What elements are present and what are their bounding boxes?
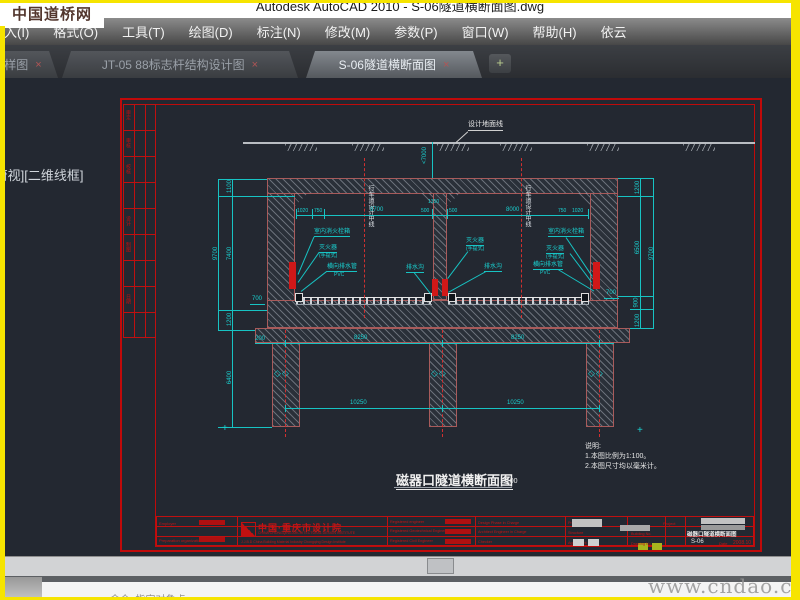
tb-label: Employer — [159, 521, 176, 526]
close-icon[interactable]: × — [252, 59, 258, 71]
centerline-text: 行车道设计中线 — [524, 185, 530, 227]
dim-label: 900 — [634, 297, 641, 307]
dim-ext — [324, 209, 325, 219]
tb-bar — [445, 529, 471, 534]
dim-line — [604, 298, 619, 299]
border-top — [0, 0, 800, 3]
tb-label: Structure — [568, 531, 583, 535]
note-line: 2.本图尺寸均以毫米计。 — [585, 462, 661, 472]
menu-item-draw[interactable]: 绘图(D) — [189, 22, 233, 41]
tb-label: Date — [719, 541, 727, 546]
break-symbol: ◇◇ — [431, 369, 447, 378]
tb-org-line: J.J.B.D China Building Material Industry… — [241, 540, 346, 544]
tb-bar — [199, 520, 225, 525]
menu-item-window[interactable]: 窗口(W) — [462, 22, 509, 41]
tb-label: Registered Civil Engineer — [390, 539, 433, 543]
tb-gray-bar — [701, 518, 745, 524]
close-icon[interactable]: × — [35, 59, 41, 71]
hydrant-box — [289, 262, 296, 289]
window-titlebar[interactable]: Autodesk AutoCAD 2010 - S-06隧道横断面图.dwg — [0, 3, 800, 18]
dim-ext — [618, 178, 654, 179]
tunnel-top-slab — [267, 178, 618, 194]
dim-label: 7400 — [227, 247, 234, 260]
dim-ext — [442, 405, 443, 412]
dim-ext — [630, 328, 654, 329]
line — [237, 517, 238, 545]
sig-label: 审核 — [125, 138, 130, 148]
command-panel-grip[interactable] — [4, 577, 42, 597]
curb-box — [581, 293, 589, 302]
tb-bar — [445, 519, 471, 524]
dim-label: 1020 — [572, 208, 583, 214]
tb-bar — [199, 537, 225, 542]
dim-label: 1200 — [635, 181, 642, 194]
dim-line — [255, 343, 614, 344]
ground-label: 设计地面线 — [468, 120, 503, 131]
dim-label: 1020 — [297, 208, 308, 214]
curb-box — [448, 293, 456, 302]
drawing-tab-bar: 样图× JT-05 88标志杆结构设计图× S-06隧道横断面图× + — [0, 45, 800, 78]
ground-hatch — [285, 144, 317, 151]
line — [627, 517, 628, 545]
sig-label: 制图 — [125, 242, 130, 252]
viewport-label: [俯视][二维线框] — [0, 165, 83, 184]
ground-line — [243, 142, 755, 144]
dim-ext — [218, 310, 267, 311]
ann-label: 室内消火栓箱 — [548, 229, 584, 237]
dim-label: 10250 — [507, 400, 524, 407]
tb-bar — [445, 539, 471, 544]
scrollbar-thumb[interactable] — [427, 558, 454, 574]
tb-label: Project — [663, 521, 675, 526]
break-symbol: ◇◇ — [274, 369, 290, 378]
dim-line — [432, 142, 433, 178]
title-block: Employer Preparation organization 中国·重庆市… — [156, 516, 754, 546]
line — [134, 105, 135, 337]
ann-label: 横向排水管 — [327, 264, 357, 272]
notes: 说明: 1.本图比例为1:100。 2.本图尺寸均以毫米计。 — [585, 442, 661, 472]
centerline — [364, 158, 365, 318]
dim-label: 500 — [421, 208, 429, 214]
pile — [272, 343, 300, 427]
border-left — [0, 26, 5, 600]
dim-ext — [630, 309, 654, 310]
ann-label: 排水沟 — [406, 265, 424, 273]
menu-item-parametric[interactable]: 参数(P) — [394, 22, 437, 41]
dim-ext — [218, 330, 255, 331]
dim-line — [296, 215, 588, 216]
ann-label: 横向排水管 — [533, 262, 563, 270]
dim-label: 1100 — [227, 180, 234, 193]
watermark-bottom: www.cndao.com — [648, 574, 800, 598]
dim-ext — [599, 405, 600, 412]
ann-label: 灭火器 — [546, 246, 564, 254]
dim-label: 9700 — [213, 247, 220, 260]
line — [387, 517, 388, 545]
dim-label: 750 — [314, 208, 322, 214]
line — [145, 105, 146, 337]
ground-hatch — [587, 144, 619, 151]
ann-label: (手提式) — [546, 254, 564, 260]
menu-item-yiyun[interactable]: 依云 — [601, 22, 627, 41]
dim-label: 8250 — [354, 335, 367, 342]
menu-item-help[interactable]: 帮助(H) — [533, 22, 577, 41]
new-tab-button[interactable]: + — [489, 54, 511, 73]
dim-label: 1350 — [428, 199, 439, 205]
sig-label: 校核 — [125, 164, 130, 174]
ann-label: PVC — [540, 270, 550, 276]
break-symbol: ◇◇ — [588, 369, 604, 378]
sig-label: 日期 — [125, 294, 130, 304]
tb-date: 2008.10 — [733, 540, 751, 546]
tb-label: Registered Geotechnical Engineer — [390, 529, 448, 533]
dim-label: 1200 — [227, 313, 234, 326]
tb-label: Preparation organization — [159, 538, 203, 543]
close-icon[interactable]: × — [443, 59, 449, 71]
dim-ext — [447, 209, 448, 219]
window-title: Autodesk AutoCAD 2010 - S-06隧道横断面图.dwg — [0, 3, 800, 15]
sig-label: 审定 — [125, 110, 130, 120]
tab-jt05[interactable]: JT-05 88标志杆结构设计图× — [62, 51, 298, 78]
sig-label: 设计 — [125, 216, 130, 226]
pile — [586, 343, 614, 427]
dim-label: <7000 — [422, 147, 429, 164]
dim-label: 8700 — [370, 207, 383, 214]
note-line: 说明: — [585, 442, 661, 452]
axis-marker: + — [637, 426, 643, 436]
dim-ext — [442, 340, 443, 347]
ground-hatch — [437, 144, 469, 151]
curb-box — [295, 293, 303, 302]
ann-label: 灭火器 — [466, 238, 484, 246]
tb-square — [588, 539, 599, 546]
menu-item-dimension[interactable]: 标注(N) — [257, 22, 301, 41]
dim-label: 500 — [449, 208, 457, 214]
border-right — [791, 0, 800, 600]
menu-bar: 入(I) 格式(O) 工具(T) 绘图(D) 标注(N) 修改(M) 参数(P)… — [0, 18, 800, 46]
dim-label: 200 — [255, 336, 265, 343]
menu-item-tools[interactable]: 工具(T) — [122, 22, 165, 41]
ann-label: 排水沟 — [484, 264, 502, 272]
tb-drawing-no: S-06 — [691, 539, 704, 545]
drain-box — [432, 279, 438, 296]
tb-org-sub: CHINA CHONGQING ARCHITECTURAL DESIGN INS… — [258, 531, 355, 535]
ground-hatch — [683, 144, 715, 151]
tb-label: Design Phase in Charge — [478, 521, 519, 525]
line — [685, 517, 686, 545]
ann-label: 室内消火栓箱 — [314, 229, 350, 237]
ann-label: (手提式) — [466, 246, 484, 252]
dim-ext — [218, 196, 295, 197]
dim-ext — [285, 340, 286, 347]
dim-line — [250, 304, 265, 305]
tb-label: Building No. — [631, 532, 651, 536]
tb-label: Checker — [478, 540, 492, 544]
hydrant-box — [593, 262, 600, 289]
tb-label: Architect Engineer in Charge — [478, 530, 527, 534]
ground-hatch — [352, 144, 384, 151]
ann-label: (手提式) — [319, 253, 337, 259]
dim-label: 6400 — [227, 371, 234, 384]
drain-box — [442, 279, 448, 296]
dim-ext — [618, 196, 654, 197]
tb-square-olive — [652, 543, 662, 550]
dim-ext — [432, 209, 433, 219]
centerline-text: 行车道设计中线 — [367, 185, 373, 227]
roadway — [448, 297, 589, 305]
tb-label: Drawing No. — [631, 542, 652, 546]
dim-ext — [285, 405, 286, 412]
dim-ext — [588, 209, 589, 219]
tb-square — [573, 539, 584, 546]
dim-ext — [218, 179, 267, 180]
dim-label: 10250 — [350, 400, 367, 407]
centerline — [521, 158, 522, 318]
watermark-top: 中国道桥网 — [0, 0, 104, 28]
tb-label: Registered engineer — [390, 520, 424, 524]
dim-ext — [599, 340, 600, 347]
tab-s06-active[interactable]: S-06隧道横断面图× — [306, 51, 482, 78]
institute-logo-icon — [241, 522, 256, 537]
dim-label: 8000 — [506, 207, 519, 214]
note-line: 1.本图比例为1:100。 — [585, 452, 661, 462]
drawing-scale: 1:100 — [500, 478, 518, 485]
tb-gray-bar — [572, 519, 602, 527]
model-space-canvas[interactable]: [俯视][二维线框] 审定 审核 校核 设计 制图 日期 设计地面线 <7000 — [0, 78, 800, 556]
ann-label: PVC — [334, 272, 344, 278]
dim-label: 9700 — [649, 247, 656, 260]
title-underline — [394, 487, 512, 488]
tb-gray-bar — [620, 525, 650, 531]
ground-hatch — [500, 144, 532, 151]
pile — [429, 343, 457, 427]
line — [565, 517, 566, 545]
menu-item-modify[interactable]: 修改(M) — [325, 22, 371, 41]
axis-marker: + — [222, 424, 228, 434]
autocad-window: Autodesk AutoCAD 2010 - S-06隧道横断面图.dwg 中… — [0, 0, 800, 600]
tb-drawing-name: 磁器口隧道横断面图 — [687, 530, 737, 538]
line — [475, 517, 476, 545]
dim-label: 700 — [252, 296, 262, 303]
tab-yangtu[interactable]: 样图× — [0, 51, 58, 78]
dim-ext — [312, 209, 313, 219]
dim-label: 6500 — [635, 241, 642, 254]
dim-label: 750 — [558, 208, 566, 214]
dim-label: 8250 — [511, 335, 524, 342]
ann-label: 灭火器 — [319, 245, 337, 253]
dim-label: 1200 — [635, 314, 642, 327]
dim-label: 700 — [606, 290, 616, 297]
